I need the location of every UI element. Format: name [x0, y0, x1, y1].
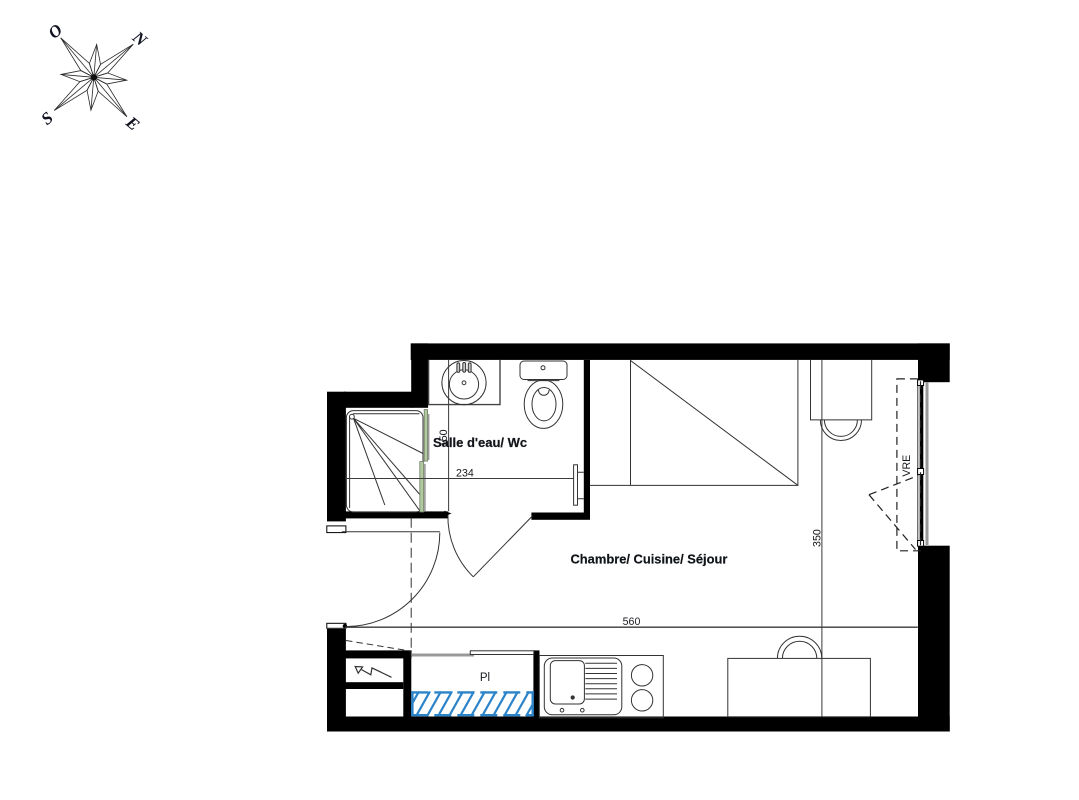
svg-text:N: N — [128, 27, 151, 51]
svg-text:VRE: VRE — [901, 455, 913, 477]
svg-text:E: E — [122, 112, 144, 134]
svg-text:Salle d'eau/ Wc: Salle d'eau/ Wc — [433, 435, 527, 450]
svg-text:Pl: Pl — [480, 672, 490, 684]
svg-text:234: 234 — [456, 467, 474, 479]
svg-text:560: 560 — [623, 616, 641, 628]
svg-text:S: S — [37, 108, 56, 129]
svg-text:Chambre/ Cuisine/ Séjour: Chambre/ Cuisine/ Séjour — [571, 551, 728, 566]
svg-text:350: 350 — [811, 529, 823, 547]
